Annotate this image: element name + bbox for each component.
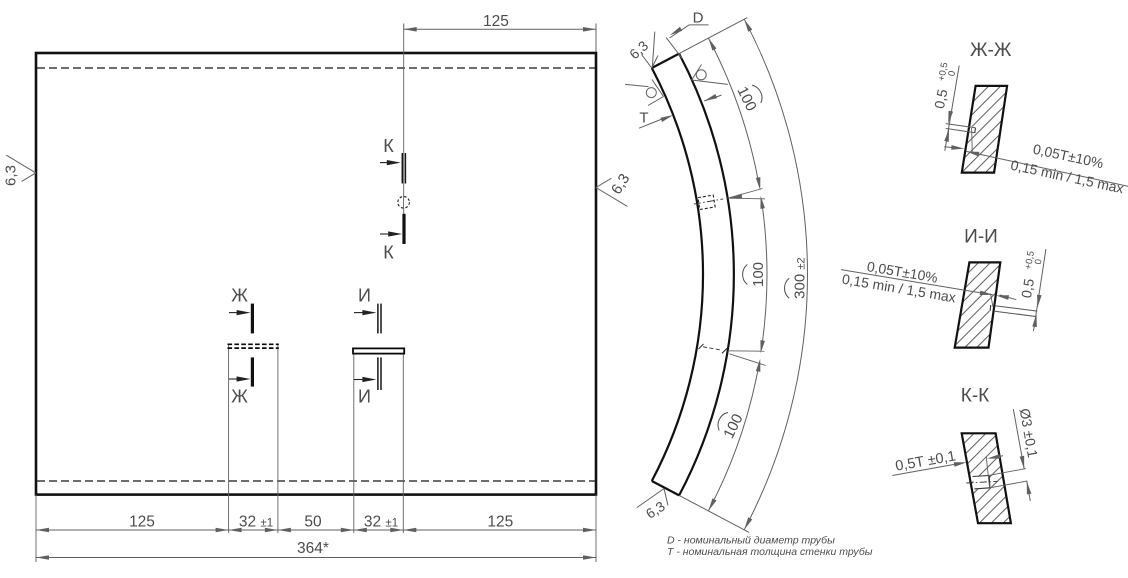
svg-text:50: 50	[304, 513, 322, 530]
svg-text:T - номинальная толщина стенки: T - номинальная толщина стенки трубы	[667, 546, 873, 558]
svg-text:100: 100	[750, 262, 767, 287]
svg-text:D - номинальный диаметр трубы: D - номинальный диаметр трубы	[667, 534, 835, 546]
svg-text:364*: 364*	[297, 540, 329, 557]
svg-text:К-К: К-К	[961, 386, 989, 407]
svg-text:0,5: 0,5	[1018, 277, 1037, 299]
svg-text:125: 125	[129, 513, 155, 530]
svg-text:T: T	[639, 110, 648, 127]
svg-text:Ж: Ж	[231, 286, 248, 306]
svg-text:Ж: Ж	[231, 387, 248, 407]
svg-text:Ж-Ж: Ж-Ж	[970, 40, 1012, 61]
svg-text:6,3: 6,3	[2, 165, 19, 186]
svg-text:К: К	[383, 243, 394, 263]
svg-text:И: И	[358, 286, 371, 306]
svg-text:125: 125	[487, 513, 513, 530]
svg-text:И: И	[358, 387, 371, 407]
svg-text:125: 125	[483, 13, 509, 30]
svg-text:И-И: И-И	[964, 227, 998, 248]
svg-text:D: D	[693, 10, 704, 27]
svg-text:К: К	[383, 136, 394, 156]
